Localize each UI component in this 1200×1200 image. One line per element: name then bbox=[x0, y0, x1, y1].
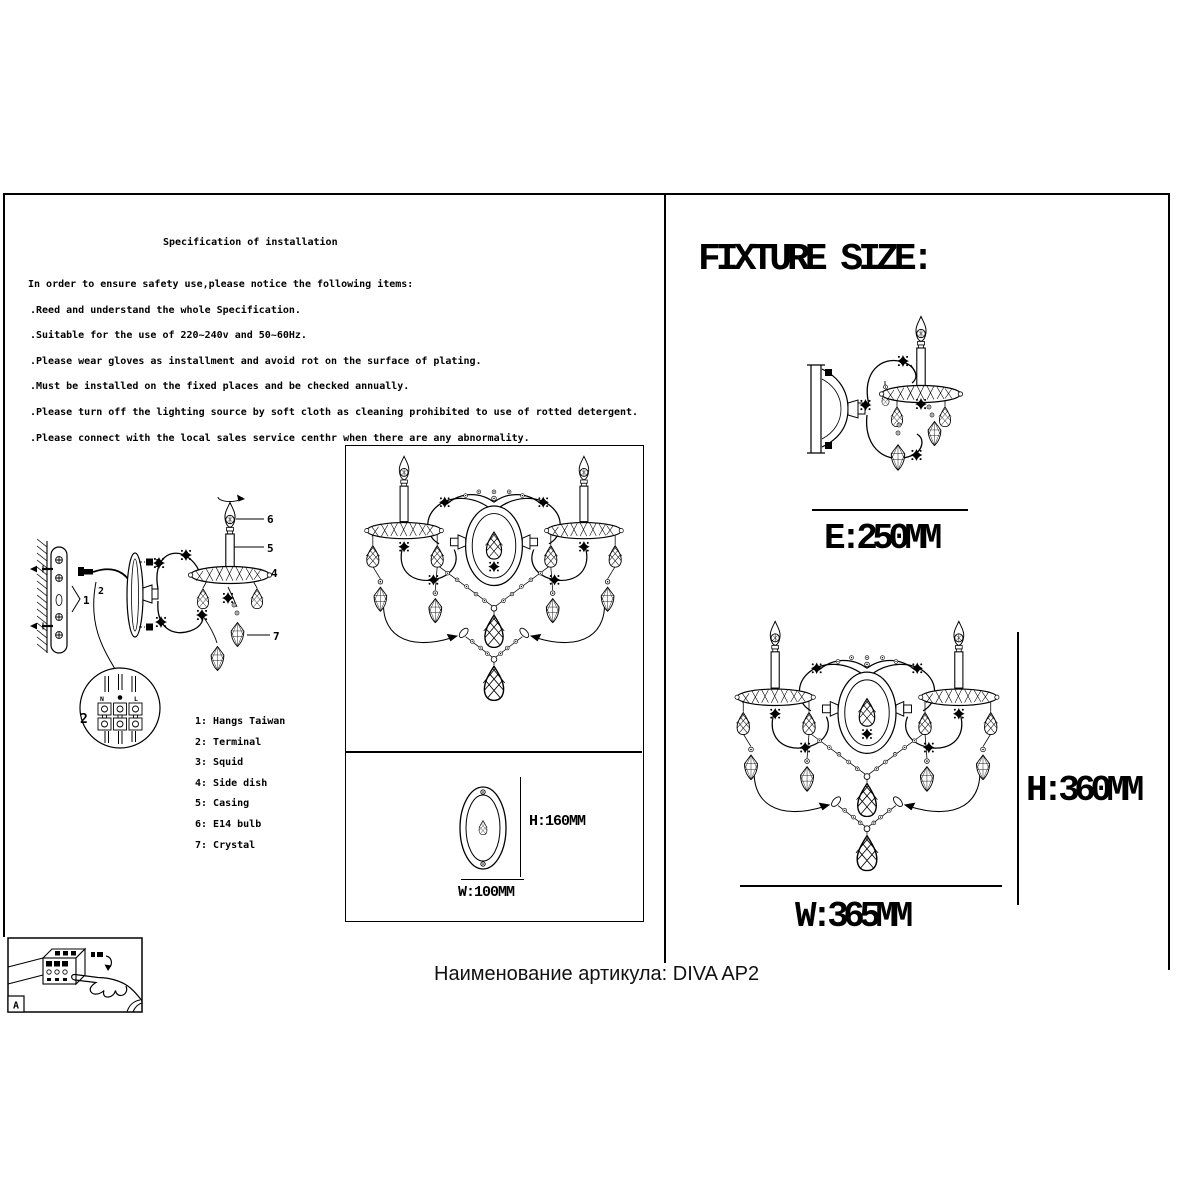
spec-notices: In order to ensure safety use,please not… bbox=[28, 272, 638, 451]
terminal-press-inset: A bbox=[7, 937, 143, 1013]
height-dim-line bbox=[1017, 632, 1019, 905]
spec-sheet: Specification of installation In order t… bbox=[0, 0, 1200, 1200]
parts-list-item: 5: Casing bbox=[195, 794, 285, 815]
callout-1: 1 bbox=[83, 594, 90, 607]
right-panel-border bbox=[1168, 193, 1170, 970]
extension-dim-label: E:250MM bbox=[824, 518, 937, 559]
panel-divider bbox=[664, 193, 666, 963]
parts-list: 1: Hangs Taiwan 2: Terminal 3: Squid 4: … bbox=[195, 712, 285, 856]
notice-line: .Reed and understand the whole Specifica… bbox=[28, 298, 638, 324]
detail-leader bbox=[94, 582, 115, 669]
parts-list-item: 2: Terminal bbox=[195, 733, 285, 754]
front-view-drawing bbox=[722, 618, 1012, 889]
parts-list-item: 4: Side dish bbox=[195, 774, 285, 795]
terminal-number: 2 bbox=[80, 712, 88, 727]
spec-intro: In order to ensure safety use,please not… bbox=[28, 272, 638, 298]
parts-list-item: 6: E14 bulb bbox=[195, 815, 285, 836]
backplate-height-label: H:160MM bbox=[529, 813, 585, 830]
callout-4: 4 bbox=[271, 567, 278, 580]
width-dim-line bbox=[740, 885, 1002, 887]
backplate-width-label: W:100MM bbox=[458, 884, 514, 901]
notice-line: .Please wear gloves as installment and a… bbox=[28, 349, 638, 375]
canopy-side bbox=[822, 369, 848, 447]
parts-list-item: 1: Hangs Taiwan bbox=[195, 712, 285, 733]
left-panel-border bbox=[3, 193, 5, 937]
parts-list-item: 3: Squid bbox=[195, 753, 285, 774]
spec-title: Specification of installation bbox=[163, 237, 338, 248]
backplate-width-dim-line bbox=[461, 879, 524, 880]
fixture-size-title: FIXTURE SIZE: bbox=[698, 238, 929, 281]
notice-line: .Please turn off the lighting source by … bbox=[28, 400, 638, 426]
side-view-drawing bbox=[793, 303, 1008, 518]
backplate-height-dim-line bbox=[520, 777, 521, 877]
notice-line: .Suitable for the use of 220~240v and 50… bbox=[28, 323, 638, 349]
callout-7: 7 bbox=[273, 630, 280, 643]
terminal-l-label: L bbox=[134, 695, 138, 703]
extension-dim-line bbox=[812, 509, 968, 511]
inset-corner-label: A bbox=[13, 1001, 19, 1012]
callout-5: 5 bbox=[267, 542, 274, 555]
canopy-disc bbox=[127, 553, 143, 637]
callout-3: 3 bbox=[155, 557, 162, 570]
panels-top-border bbox=[3, 193, 1169, 195]
callout-2: 2 bbox=[98, 586, 104, 597]
wire bbox=[93, 569, 130, 582]
notice-line: .Must be installed on the fixed places a… bbox=[28, 374, 638, 400]
article-caption: Наименование артикула: DIVA AP2 bbox=[434, 963, 759, 986]
assembly-sconce-drawing bbox=[352, 453, 636, 721]
arm-lower bbox=[158, 601, 203, 633]
width-dim-label: W:365MM bbox=[795, 896, 908, 937]
callout-6: 6 bbox=[267, 513, 274, 526]
parts-list-item: 7: Crystal bbox=[195, 836, 285, 857]
backplate-oval-drawing bbox=[458, 782, 508, 874]
assembly-box-divider bbox=[345, 751, 642, 753]
height-dim-label: H:360MM bbox=[1026, 770, 1139, 811]
terminal-n-label: N bbox=[100, 695, 104, 703]
